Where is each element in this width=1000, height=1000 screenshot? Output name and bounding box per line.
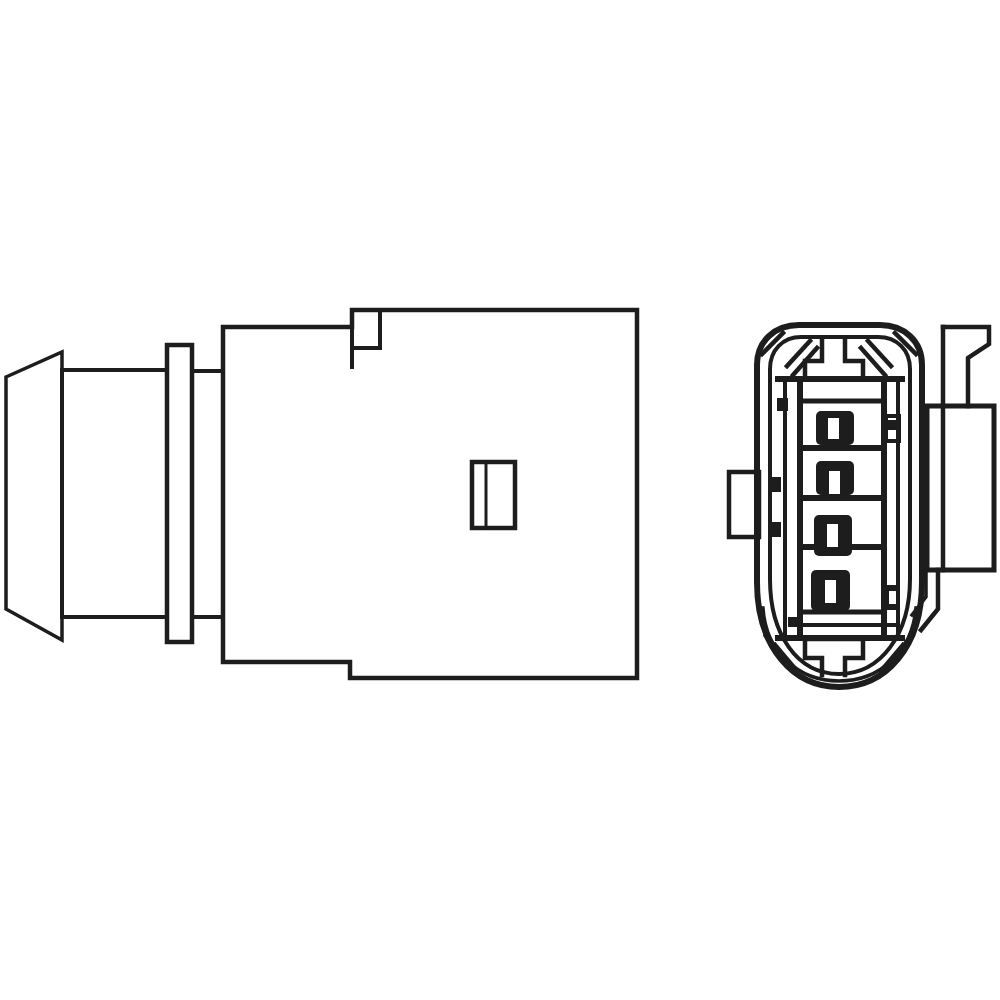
housing-outline <box>223 310 637 678</box>
product-technical-drawing <box>0 0 1000 1000</box>
housing-notch <box>352 310 380 348</box>
bracket-body <box>927 406 994 570</box>
sensor-side-view <box>6 310 637 678</box>
release-lever <box>943 327 989 406</box>
terminal-pin-4-slot <box>825 580 836 603</box>
terminal-pin-1-slot <box>828 418 839 439</box>
product-image-canvas <box>0 0 1000 1000</box>
terminal-pin-3-slot <box>827 524 838 547</box>
terminal-pin-2-slot <box>829 471 840 494</box>
mounting-flange <box>167 345 192 642</box>
connector-front-view <box>729 325 994 687</box>
terminal-pins <box>811 411 854 611</box>
end-cap <box>6 352 62 640</box>
neck <box>192 371 223 617</box>
keying-tab-top <box>805 338 863 379</box>
sensor-body <box>62 370 167 617</box>
latch-window <box>472 462 515 528</box>
